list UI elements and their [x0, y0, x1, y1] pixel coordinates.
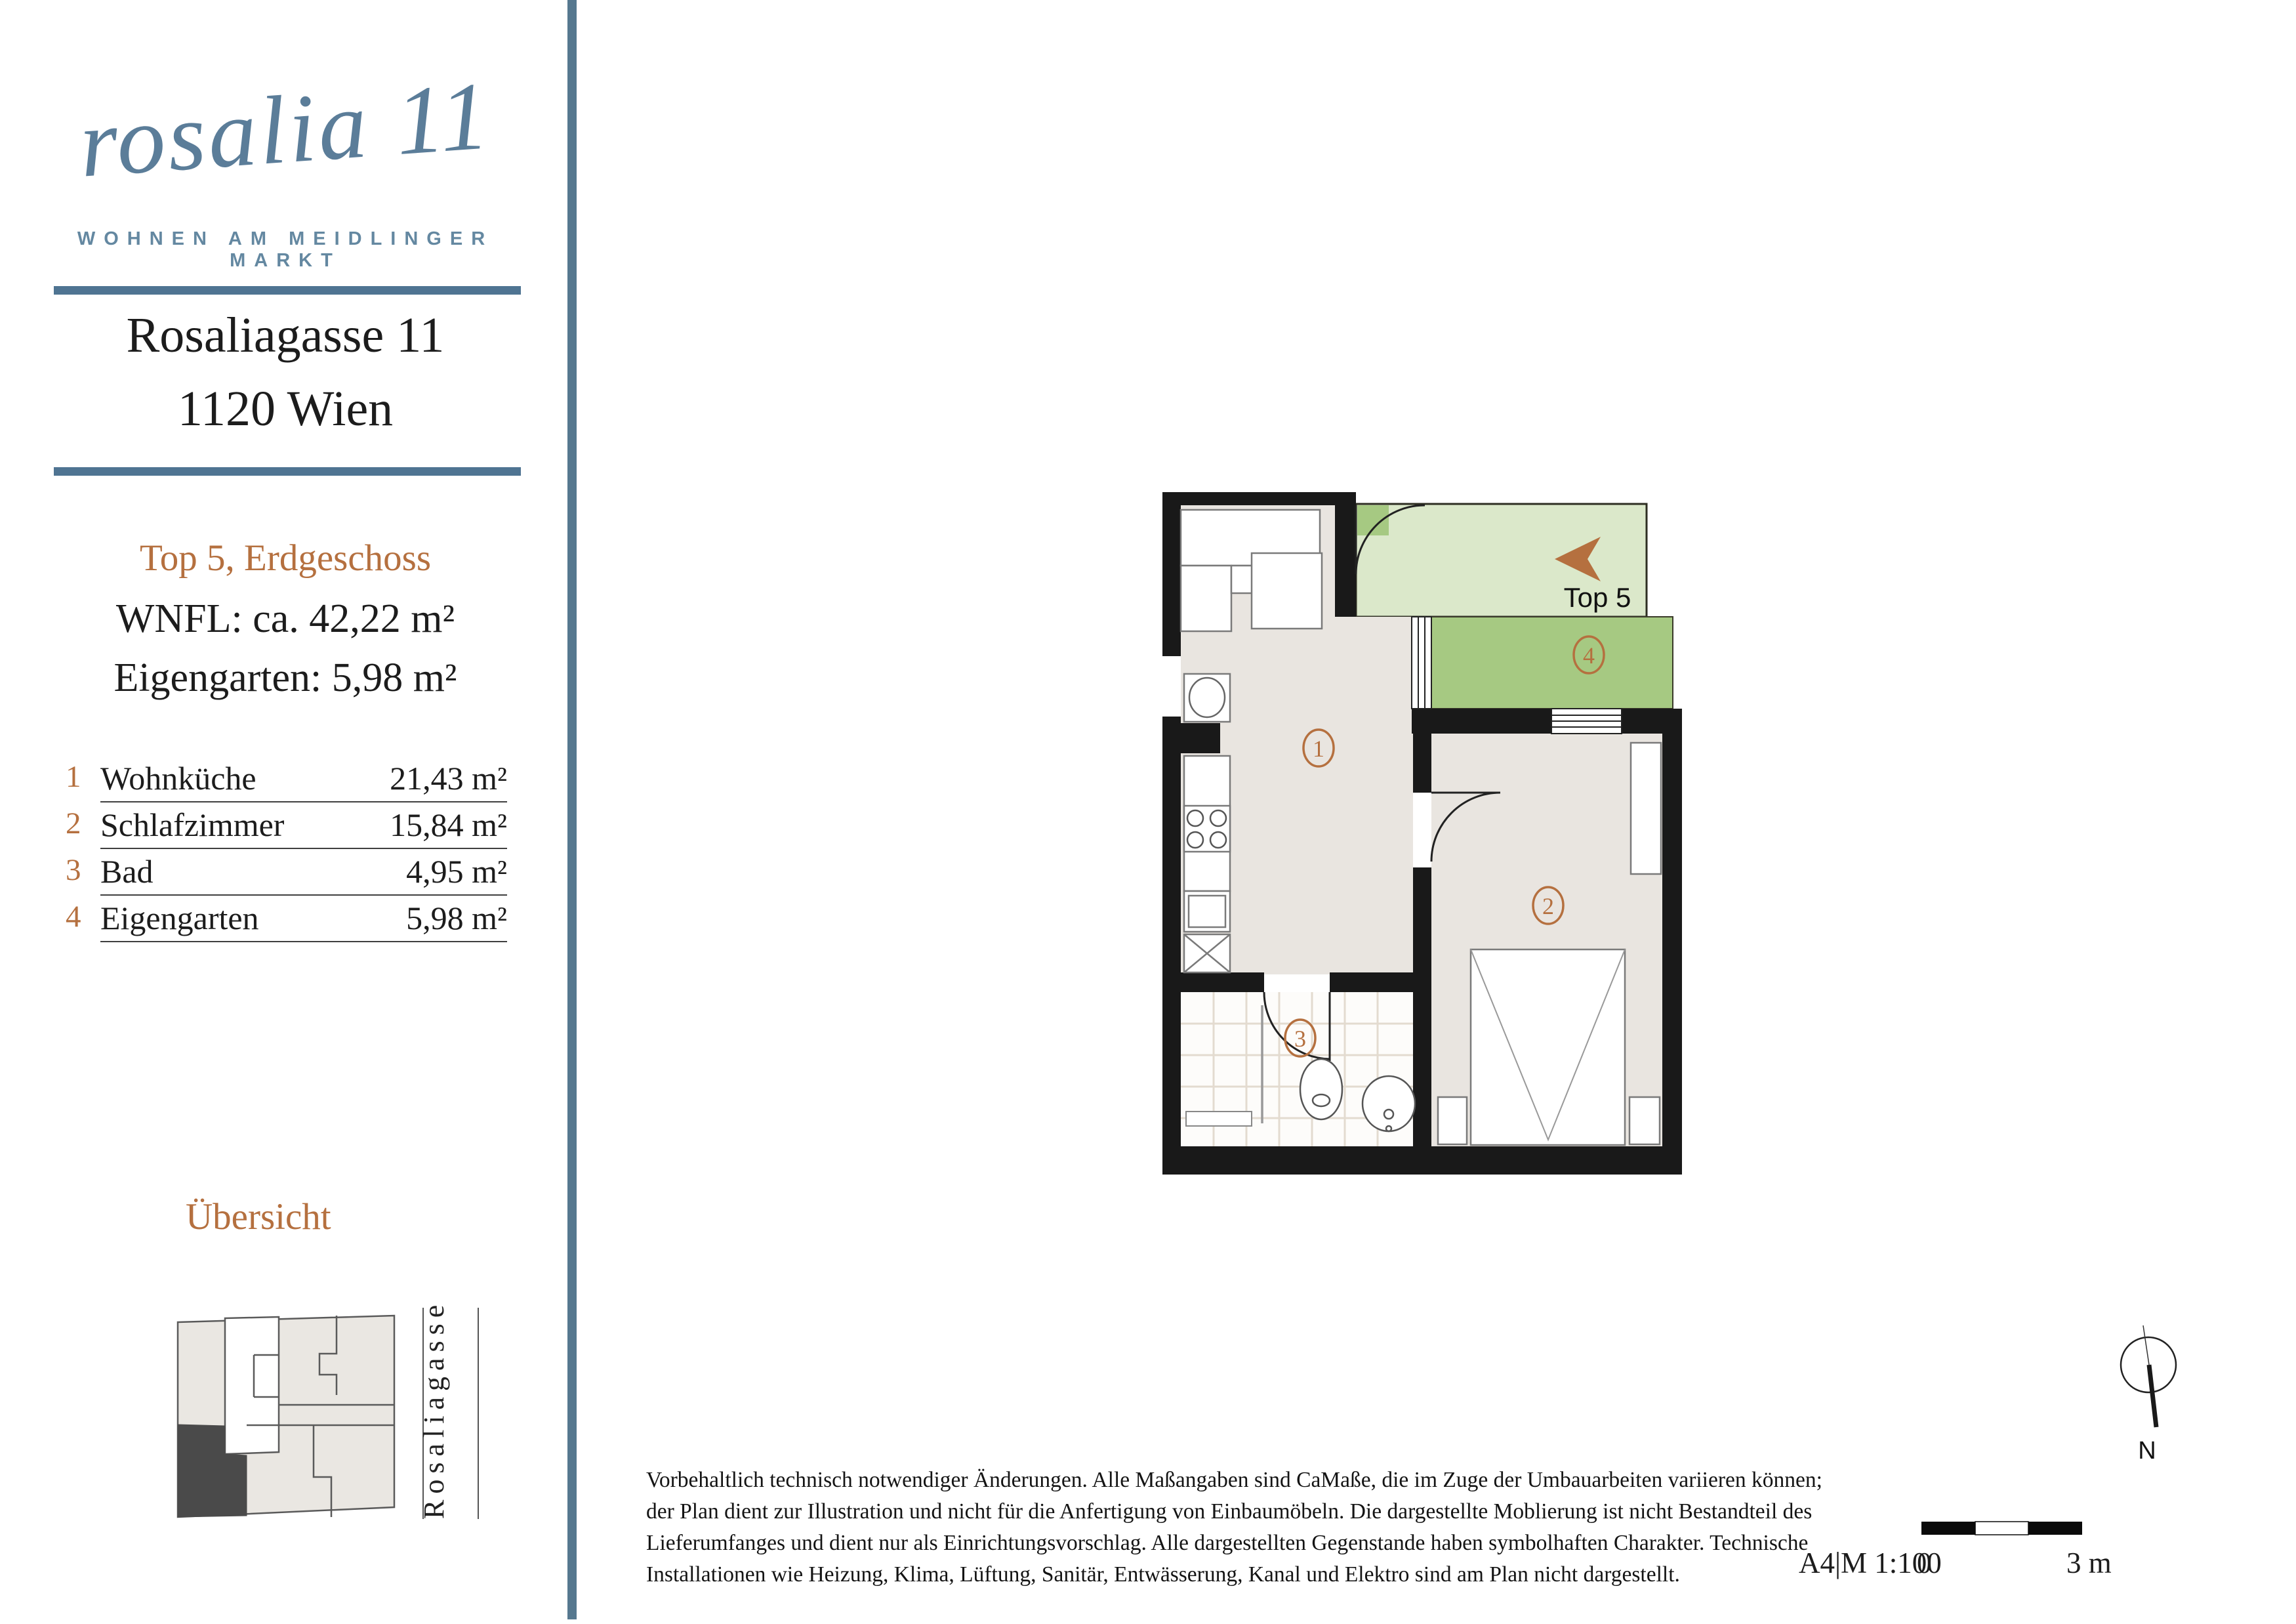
badge-3: 3: [1294, 1026, 1306, 1052]
table-row: 1 Wohnküche 21,43 m²: [62, 756, 507, 802]
badge-2: 2: [1542, 893, 1554, 919]
overview-unit-white: [225, 1317, 279, 1454]
table-row: 3 Bad 4,95 m²: [62, 849, 507, 896]
kitchen-stove: [1184, 806, 1230, 852]
scale-end-label: 3 m: [2066, 1546, 2112, 1580]
scale-start-label: 0: [1917, 1546, 1932, 1580]
room-name: Eigengarten: [100, 899, 259, 937]
disclaimer-line: Vorbehaltlich technisch notwendiger Ände…: [646, 1465, 1932, 1496]
table-row: 2 Schlafzimmer 15,84 m²: [62, 802, 507, 849]
unit-garden-area: Eigengarten: 5,98 m²: [26, 655, 544, 701]
entrance-label: Top 5: [1564, 582, 1631, 613]
washbasin: [1363, 1076, 1415, 1131]
garden-area: [1431, 617, 1673, 709]
unit-title: Top 5, Erdgeschoss: [26, 537, 544, 579]
north-compass: N: [2096, 1309, 2214, 1467]
badge-1: 1: [1313, 736, 1324, 762]
room-area: 21,43 m²: [390, 759, 507, 797]
divider-rule-top: [54, 286, 521, 295]
kitchen-sink: [1184, 674, 1230, 722]
room-number: 2: [66, 806, 81, 841]
room-name: Wohnküche: [100, 759, 256, 797]
garden-vestibule-corner: [1357, 505, 1389, 535]
address-street: Rosaliagasse 11: [26, 307, 544, 364]
wardrobe: [1631, 743, 1661, 874]
divider-rule-bottom: [54, 467, 521, 476]
bed: [1471, 949, 1625, 1145]
brand-logo: rosalia 11: [22, 45, 549, 217]
disclaimer-line: Installationen wie Heizung, Klima, Lüftu…: [646, 1559, 1932, 1591]
room-area: 15,84 m²: [390, 806, 507, 844]
room-number: 1: [66, 759, 81, 795]
room-name: Schlafzimmer: [100, 806, 284, 844]
compass-needle-thick: [2149, 1365, 2156, 1427]
badge-4: 4: [1583, 642, 1595, 669]
overview-plan: [173, 1313, 401, 1520]
table-row: 4 Eigengarten 5,98 m²: [62, 896, 507, 942]
page-divider: [567, 0, 577, 1619]
compass-circle: [2121, 1337, 2176, 1392]
disclaimer-line: der Plan dient zur Illustration und nich…: [646, 1496, 1932, 1528]
disclaimer-text: Vorbehaltlich technisch notwendiger Ände…: [646, 1465, 1932, 1591]
north-label: N: [2138, 1437, 2156, 1465]
room-number: 3: [66, 852, 81, 888]
brand-tagline: WOHNEN AM MEIDLINGER MARKT: [26, 228, 544, 272]
street-line-right: [478, 1308, 479, 1519]
floorplan-sheet: rosalia 11 WOHNEN AM MEIDLINGER MARKT Ro…: [0, 0, 2296, 1624]
scale-bar: [1921, 1521, 2085, 1537]
unit-living-area: WNFL: ca. 42,22 m²: [26, 596, 544, 642]
room-table: 1 Wohnküche 21,43 m² 2 Schlafzimmer 15,8…: [62, 756, 507, 942]
floor-plan: Top 5 1 2 3 4: [1162, 487, 1687, 1175]
room-name: Bad: [100, 852, 154, 890]
disclaimer-line: Lieferumfanges und dient nur als Einrich…: [646, 1528, 1932, 1559]
address-city: 1120 Wien: [26, 381, 544, 438]
street-label: Rosaliagasse: [417, 1308, 483, 1519]
compass-needle-thin: [2143, 1325, 2149, 1365]
room-number: 4: [66, 899, 81, 934]
room-area: 4,95 m²: [406, 852, 507, 890]
room-area: 5,98 m²: [406, 899, 507, 937]
overview-title: Übersicht: [186, 1196, 331, 1238]
toilet: [1300, 1059, 1342, 1119]
